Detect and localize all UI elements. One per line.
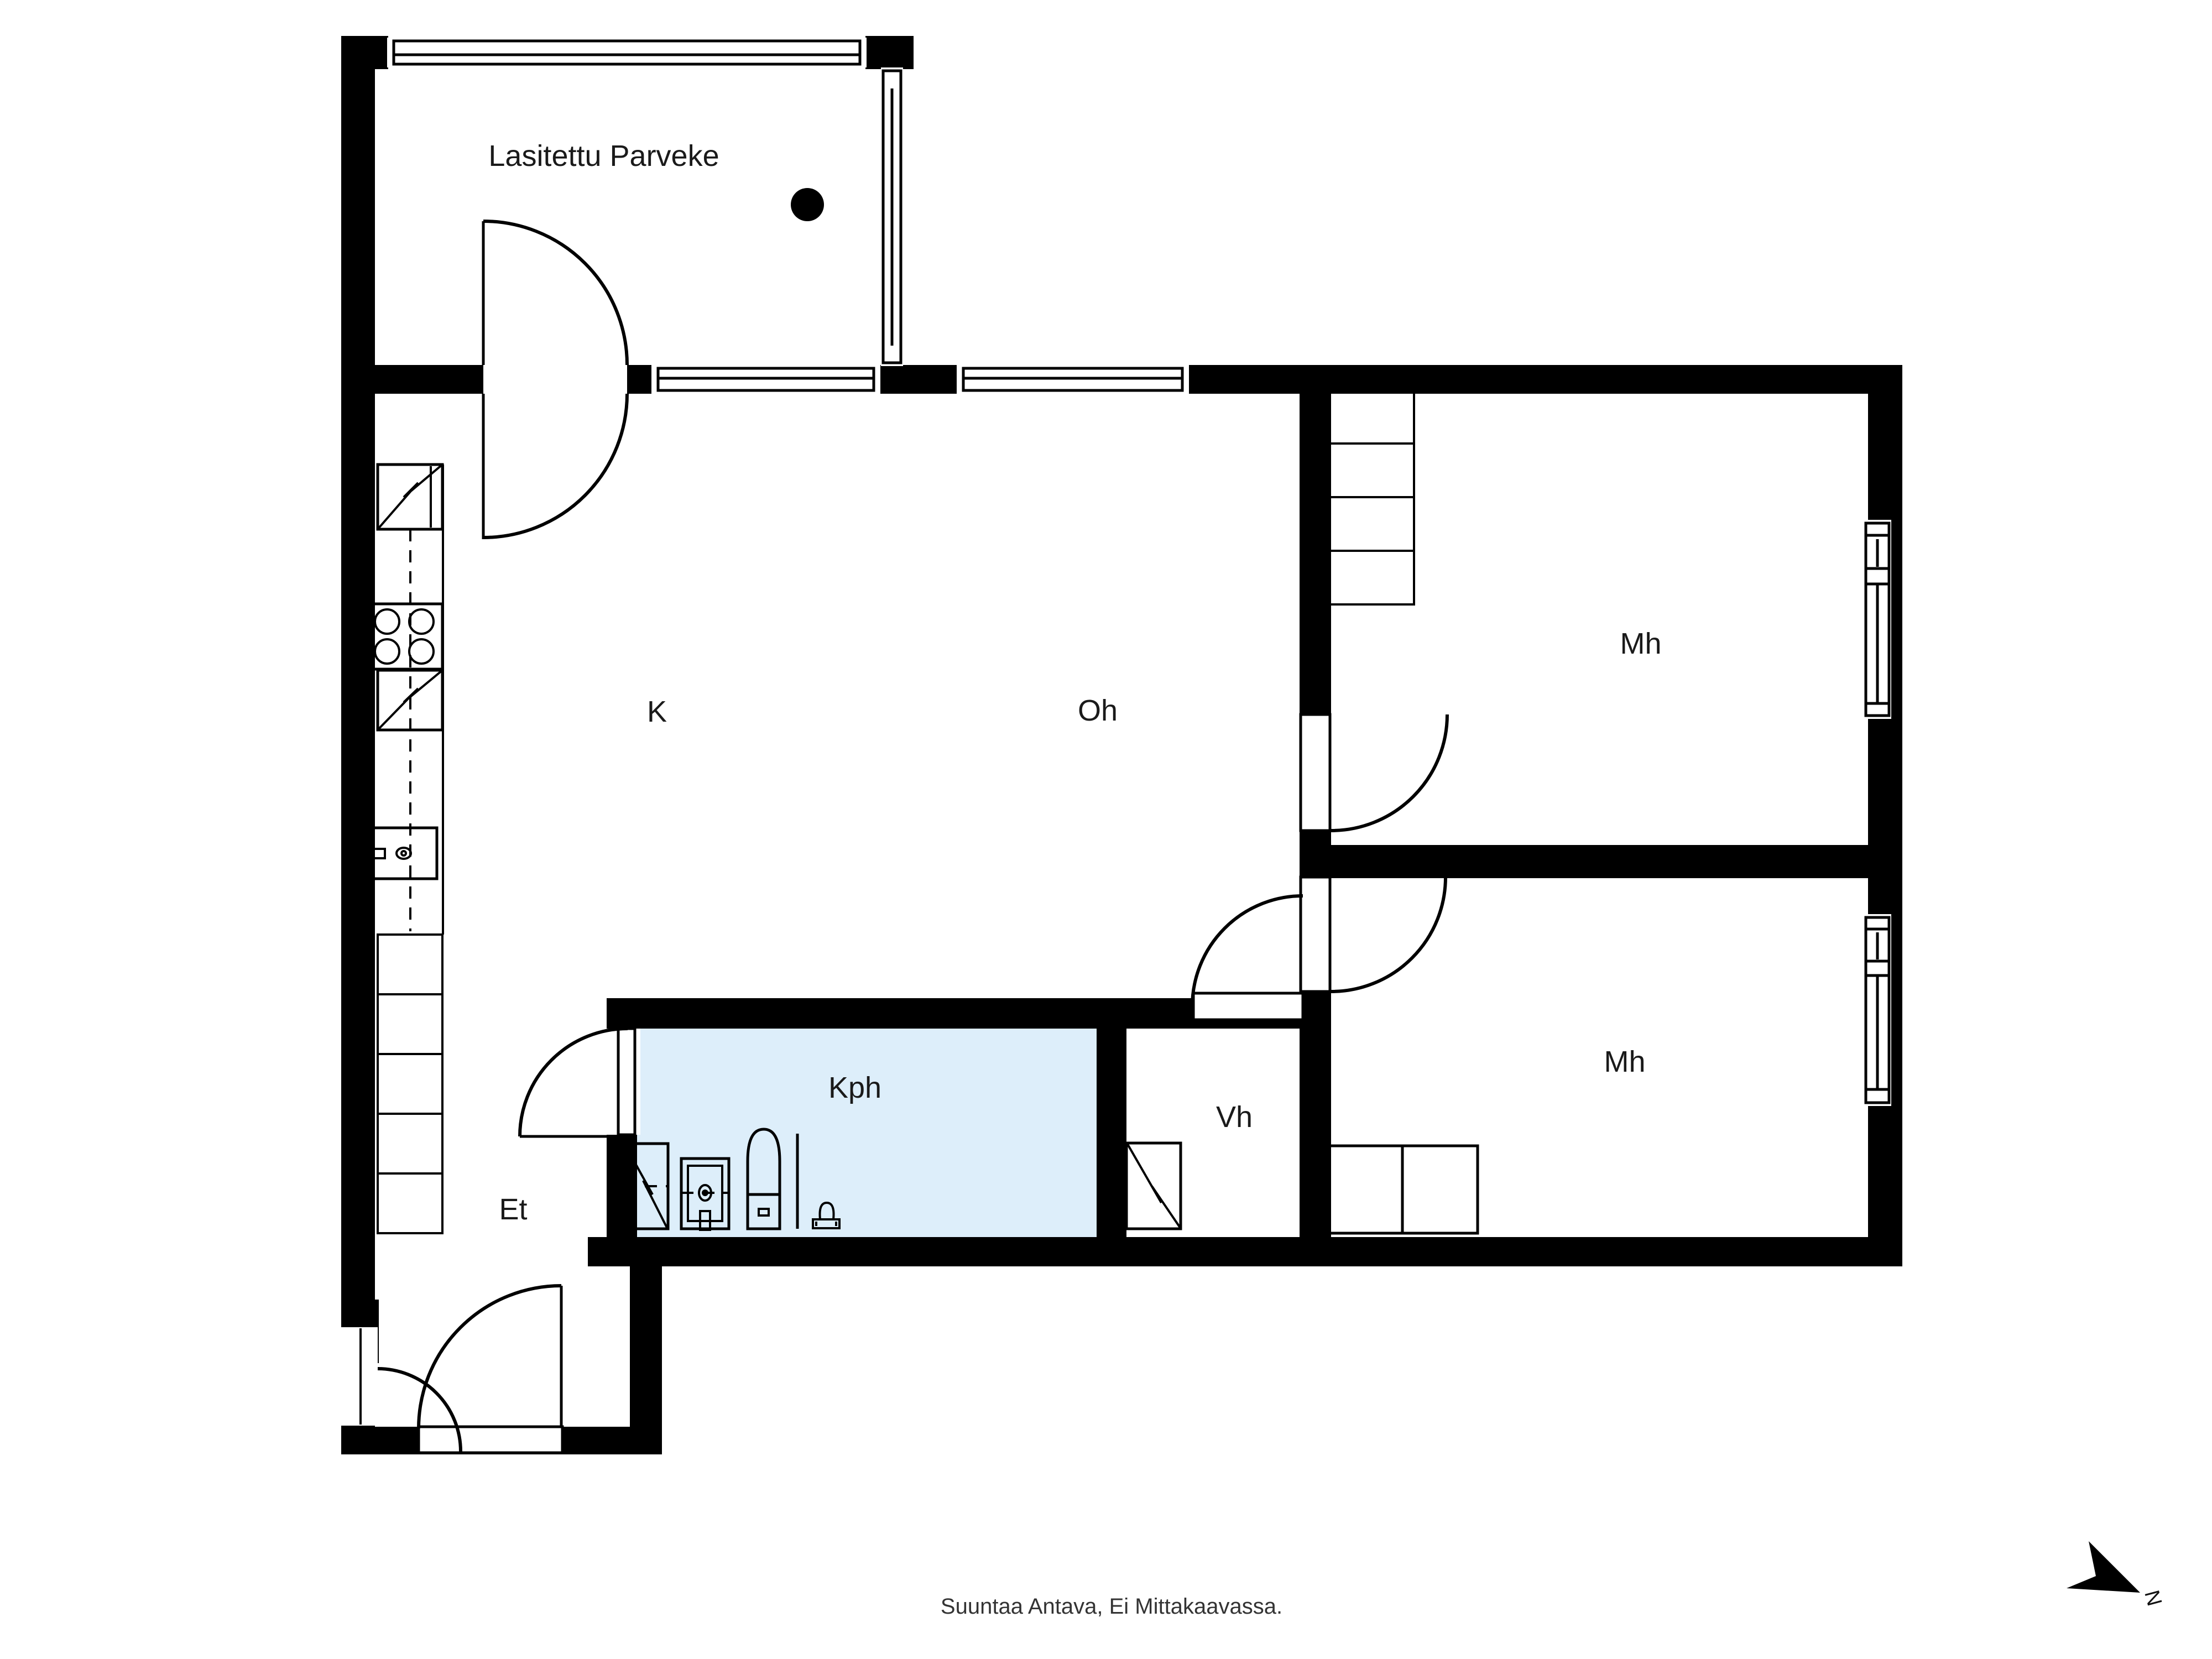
bedroom1-window	[1864, 520, 1891, 719]
balcony-top-window	[387, 38, 867, 67]
balcony-label: Lasitettu Parveke	[488, 139, 719, 173]
bathroom-label: Kph	[828, 1071, 881, 1104]
bedroom2-label: Mh	[1604, 1045, 1645, 1078]
bathroom-floor	[625, 1012, 1112, 1244]
bedroom2-window	[1864, 914, 1891, 1106]
bedroom1-label: Mh	[1620, 627, 1661, 660]
disclaimer-text: Suuntaa Antava, Ei Mittakaavassa.	[941, 1594, 1282, 1619]
living-room-label: Oh	[1078, 694, 1118, 727]
kitchen-window	[651, 365, 880, 394]
floor-plan: Lasitettu Parveke K Oh Mh Mh Kph Vh Et N…	[0, 0, 2212, 1659]
entry-label: Et	[499, 1193, 527, 1226]
living-room-window	[957, 365, 1189, 394]
closet-label: Vh	[1216, 1100, 1253, 1134]
balcony-drain-icon	[791, 188, 824, 221]
balcony-side-window	[881, 67, 903, 366]
kitchen-label: K	[647, 695, 667, 728]
